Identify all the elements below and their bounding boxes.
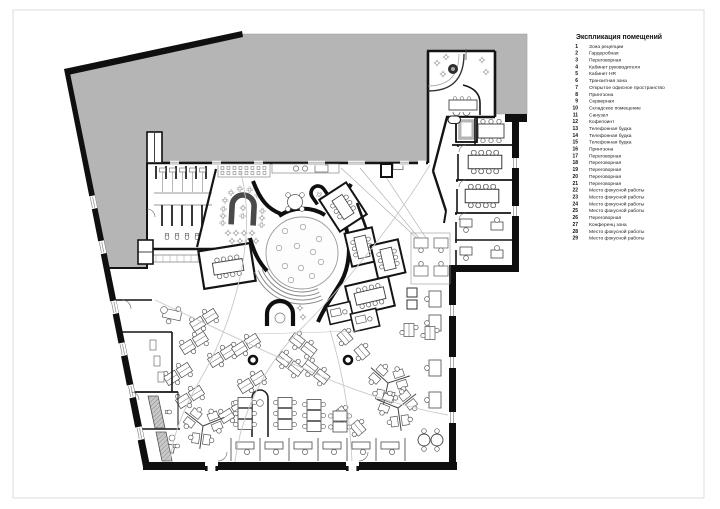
svg-text:1: 1 [575, 44, 578, 50]
svg-text:Переговорная: Переговорная [589, 153, 621, 159]
svg-text:3: 3 [575, 58, 578, 64]
svg-text:14: 14 [572, 133, 578, 139]
svg-text:26: 26 [572, 215, 578, 221]
svg-text:21: 21 [572, 181, 578, 187]
svg-text:Санузел: Санузел [589, 112, 608, 118]
svg-text:Принтзона: Принтзона [589, 92, 614, 98]
svg-text:9: 9 [575, 99, 578, 105]
svg-text:8: 8 [575, 92, 578, 98]
svg-text:29: 29 [572, 236, 578, 242]
svg-text:7: 7 [575, 85, 578, 91]
svg-text:Место фокусной работы: Место фокусной работы [589, 228, 645, 235]
svg-text:Кабинет HR: Кабинет HR [589, 71, 616, 77]
svg-text:Место фокусной работы: Место фокусной работы [589, 187, 645, 194]
svg-text:Переговорная: Переговорная [589, 215, 621, 221]
svg-text:6: 6 [575, 78, 578, 84]
svg-text:Открытое офисное пространство: Открытое офисное пространство [589, 85, 665, 91]
svg-text:20: 20 [572, 174, 578, 180]
svg-text:Кабинет руководителя: Кабинет руководителя [589, 64, 640, 70]
svg-text:Кофепоинт: Кофепоинт [589, 119, 615, 125]
svg-text:Переговорная: Переговорная [589, 167, 621, 173]
svg-text:10: 10 [572, 105, 578, 111]
svg-text:Место фокусной работы: Место фокусной работы [589, 200, 645, 207]
svg-text:Телефонная будка: Телефонная будка [589, 133, 632, 139]
svg-text:5: 5 [575, 71, 578, 77]
svg-text:Место фокусной работы: Место фокусной работы [589, 194, 645, 201]
svg-text:Переговорная: Переговорная [589, 160, 621, 166]
svg-text:Телефонная будка: Телефонная будка [589, 140, 632, 146]
svg-text:Складское помещение: Складское помещение [589, 105, 641, 111]
svg-text:19: 19 [572, 167, 578, 173]
svg-text:23: 23 [572, 195, 578, 201]
svg-text:18: 18 [572, 160, 578, 166]
svg-text:Экспликация помещений: Экспликация помещений [576, 33, 662, 41]
svg-text:Место фокусной работы: Место фокусной работы [589, 207, 645, 214]
svg-text:2: 2 [575, 51, 578, 57]
svg-text:Транзитная зона: Транзитная зона [589, 78, 627, 84]
svg-text:Зона рецепции: Зона рецепции [589, 44, 624, 50]
svg-text:Гардеробная: Гардеробная [589, 51, 619, 57]
svg-text:28: 28 [572, 229, 578, 235]
svg-text:Серверная: Серверная [589, 99, 614, 105]
svg-text:16: 16 [572, 147, 578, 153]
svg-text:12: 12 [572, 119, 578, 125]
svg-text:17: 17 [572, 153, 578, 159]
svg-text:11: 11 [573, 112, 579, 118]
svg-text:Телефонная будка: Телефонная будка [589, 126, 632, 132]
svg-text:Конференц зона: Конференц зона [589, 222, 627, 228]
svg-text:25: 25 [572, 208, 578, 214]
svg-text:Принтзона: Принтзона [589, 147, 614, 153]
svg-text:Переговорная: Переговорная [589, 174, 621, 180]
svg-text:24: 24 [572, 201, 578, 207]
svg-text:13: 13 [572, 126, 578, 132]
svg-text:15: 15 [572, 140, 578, 146]
svg-text:4: 4 [575, 64, 578, 70]
svg-text:Переговорная: Переговорная [589, 58, 621, 64]
svg-text:22: 22 [572, 188, 578, 194]
svg-text:27: 27 [572, 222, 578, 228]
svg-text:Место фокусной работы: Место фокусной работы [589, 235, 645, 242]
svg-text:Переговорная: Переговорная [589, 181, 621, 187]
